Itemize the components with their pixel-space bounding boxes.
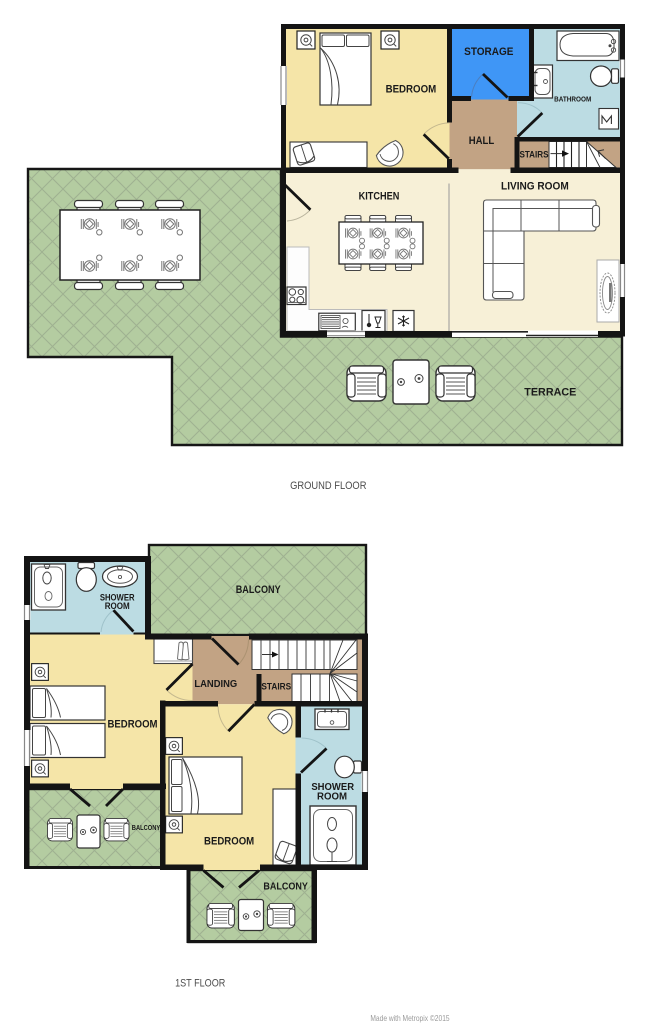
svg-text:BALCONY: BALCONY [132, 825, 161, 832]
svg-text:BEDROOM: BEDROOM [204, 836, 254, 848]
svg-text:STAIRS: STAIRS [261, 682, 291, 693]
svg-text:Made with Metropix ©2015: Made with Metropix ©2015 [370, 1014, 450, 1023]
svg-text:BEDROOM: BEDROOM [108, 718, 158, 730]
svg-text:LIVING ROOM: LIVING ROOM [501, 181, 569, 193]
svg-text:1ST FLOOR: 1ST FLOOR [175, 978, 225, 990]
svg-text:GROUND FLOOR: GROUND FLOOR [290, 480, 366, 492]
svg-text:BATHROOM: BATHROOM [554, 95, 591, 104]
svg-text:KITCHEN: KITCHEN [359, 190, 400, 202]
svg-text:STORAGE: STORAGE [464, 46, 513, 58]
svg-text:LANDING: LANDING [194, 679, 237, 690]
svg-text:ROOM: ROOM [105, 601, 130, 611]
svg-text:ROOM: ROOM [317, 792, 347, 803]
svg-text:BALCONY: BALCONY [236, 584, 282, 596]
svg-text:BALCONY: BALCONY [263, 882, 308, 893]
svg-text:STAIRS: STAIRS [519, 150, 548, 161]
svg-text:HALL: HALL [469, 135, 495, 147]
svg-text:BEDROOM: BEDROOM [386, 83, 437, 95]
svg-text:TERRACE: TERRACE [524, 387, 576, 399]
